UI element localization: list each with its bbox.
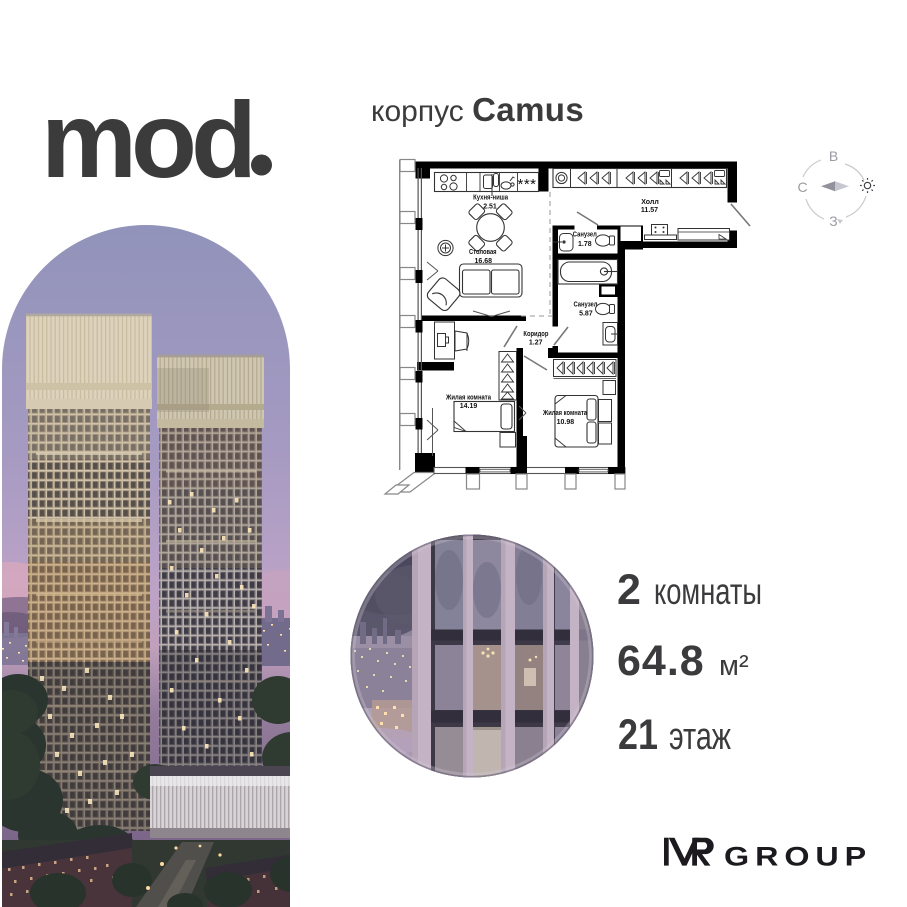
svg-text:Кухня-ниша: Кухня-ниша: [473, 195, 508, 202]
svg-text:2.51: 2.51: [483, 204, 497, 211]
svg-text:Жилая комната: Жилая комната: [445, 395, 491, 402]
svg-text:16.68: 16.68: [475, 258, 493, 265]
svg-text:14.19: 14.19: [460, 403, 478, 410]
svg-text:5.87: 5.87: [579, 310, 593, 317]
svg-text:GROUP: GROUP: [724, 842, 872, 872]
svg-text:10.98: 10.98: [557, 419, 575, 426]
svg-text:1.27: 1.27: [529, 340, 543, 347]
svg-text:этаж: этаж: [669, 716, 731, 758]
svg-text:С: С: [797, 179, 807, 195]
svg-text:mod: mod: [41, 79, 251, 200]
svg-text:Жилая комната: Жилая комната: [542, 410, 587, 417]
svg-text:комнаты: комнаты: [654, 571, 762, 612]
svg-text:корпус Camus: корпус Camus: [371, 91, 584, 128]
svg-text:1.78: 1.78: [578, 241, 592, 248]
svg-text:В: В: [829, 148, 838, 164]
svg-text:21: 21: [618, 711, 658, 759]
svg-text:Санузел: Санузел: [573, 232, 597, 239]
svg-text:м²: м²: [719, 650, 749, 682]
svg-text:Столовая: Столовая: [469, 249, 497, 256]
svg-text:2: 2: [617, 566, 641, 614]
svg-text:***: ***: [518, 176, 537, 193]
svg-text:Холл: Холл: [641, 199, 659, 206]
svg-text:64.8: 64.8: [617, 637, 705, 685]
svg-text:З: З: [829, 213, 837, 229]
svg-text:11.57: 11.57: [641, 207, 658, 214]
svg-text:Санузел: Санузел: [574, 302, 598, 309]
svg-text:Коридор: Коридор: [523, 331, 548, 338]
